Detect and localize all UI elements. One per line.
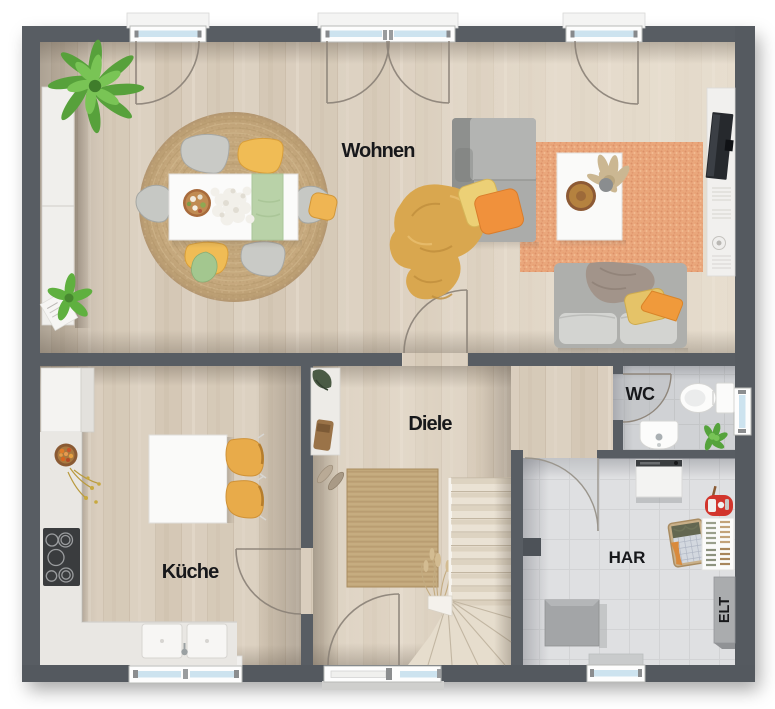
svg-text:WC: WC xyxy=(626,384,655,404)
svg-text:HAR: HAR xyxy=(609,548,646,567)
svg-text:Wohnen: Wohnen xyxy=(341,140,414,162)
svg-text:Küche: Küche xyxy=(162,561,219,583)
svg-text:Diele: Diele xyxy=(408,413,452,435)
svg-text:ELT: ELT xyxy=(717,597,733,623)
